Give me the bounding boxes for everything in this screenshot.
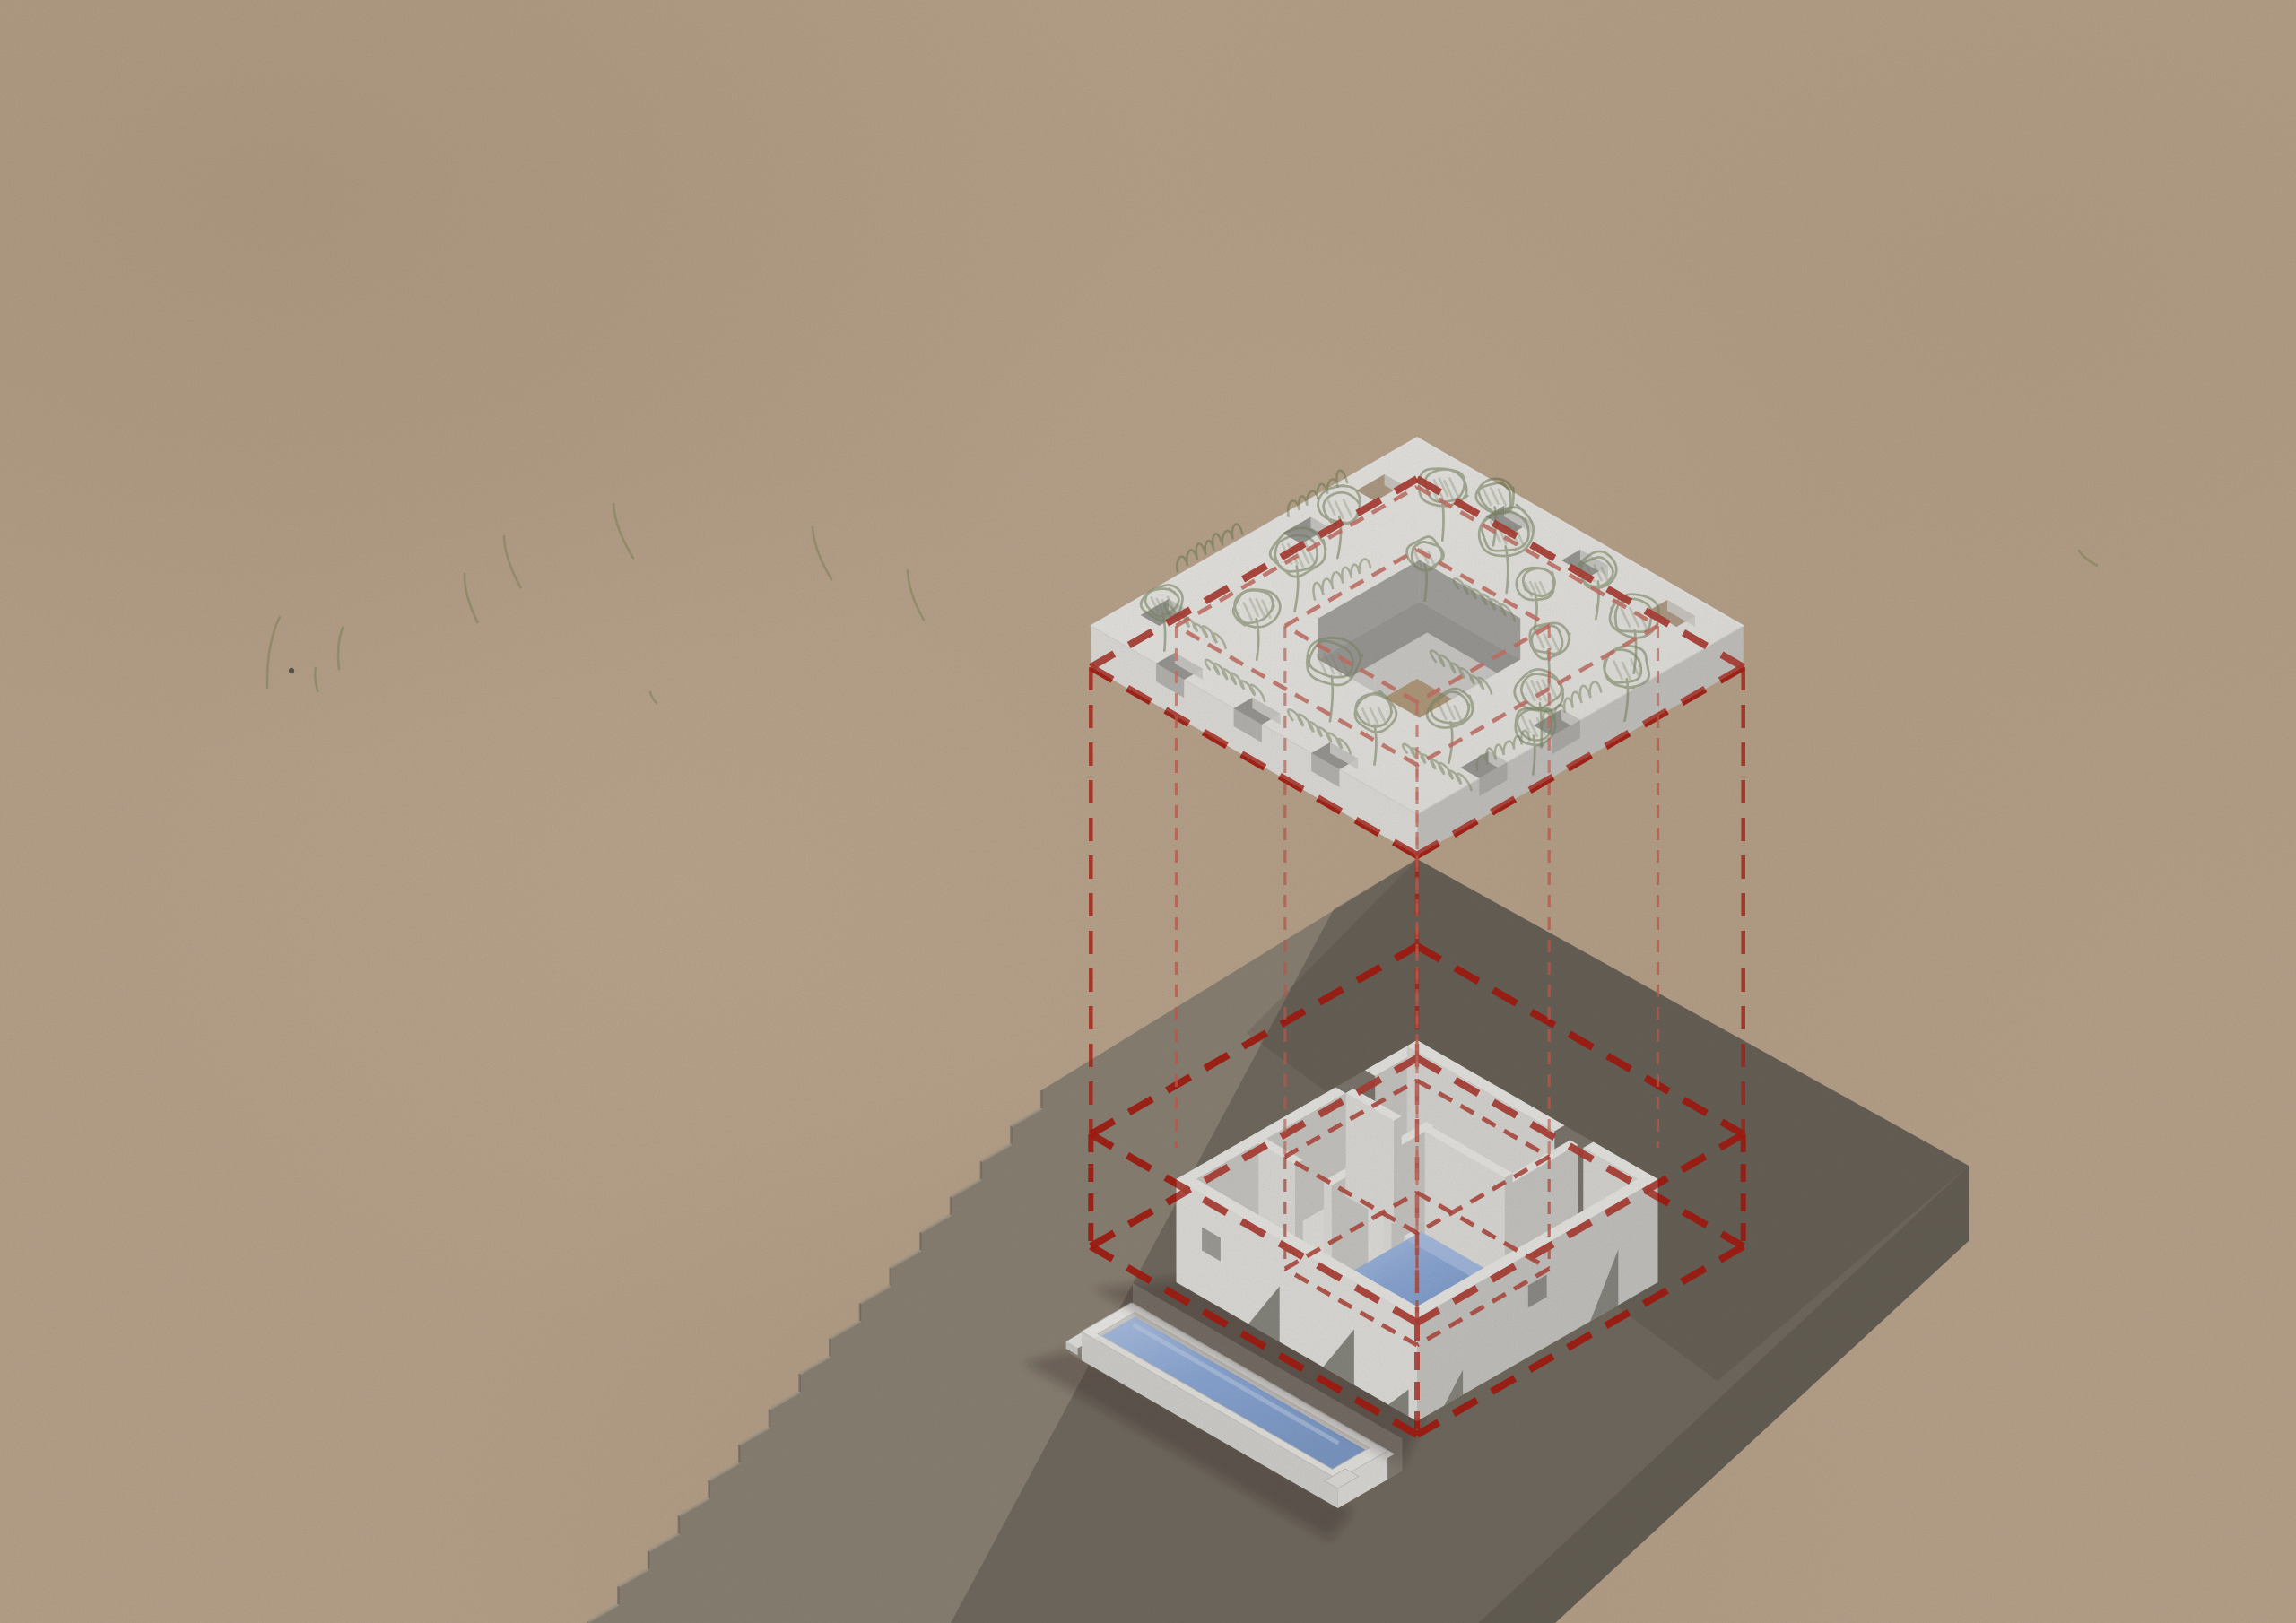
illustration-canvas bbox=[0, 0, 2296, 1623]
paper-grain-texture bbox=[0, 0, 2296, 1623]
axonometric-illustration bbox=[0, 0, 2296, 1623]
